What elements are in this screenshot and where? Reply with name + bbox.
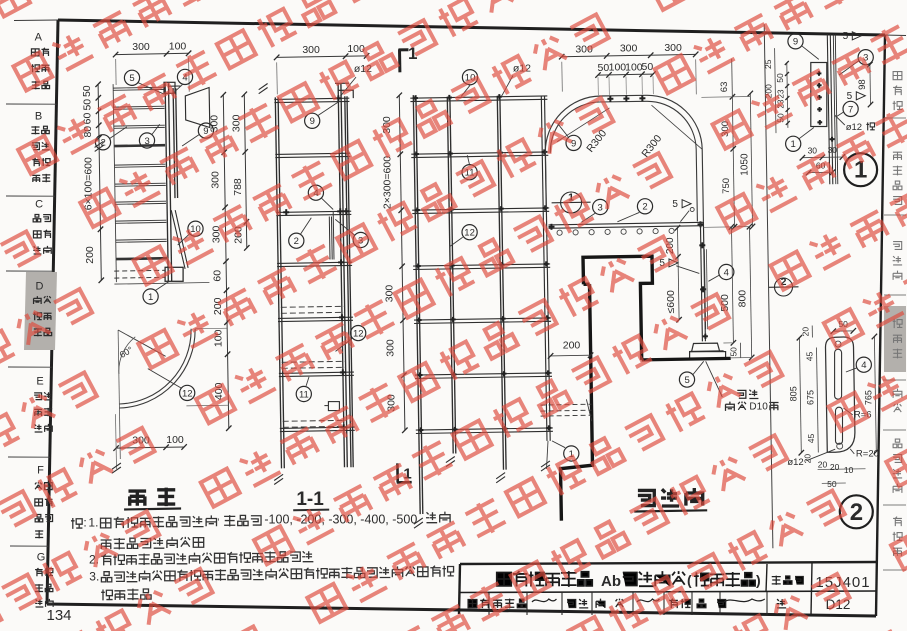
svg-text:1: 1	[791, 139, 796, 150]
svg-text::: :	[83, 516, 86, 530]
svg-text:1-1: 1-1	[296, 489, 324, 510]
svg-text:20: 20	[830, 462, 840, 472]
svg-text:98: 98	[857, 79, 868, 90]
svg-text:5: 5	[684, 375, 689, 386]
svg-text:4: 4	[724, 267, 729, 278]
svg-text:300: 300	[210, 171, 222, 189]
svg-text:45: 45	[806, 434, 816, 444]
svg-text:2: 2	[100, 138, 105, 149]
svg-text:3.: 3.	[89, 570, 99, 584]
svg-text:5: 5	[843, 31, 849, 42]
svg-text:9: 9	[793, 37, 798, 48]
svg-text:30: 30	[808, 146, 818, 156]
svg-text:50: 50	[827, 479, 837, 489]
svg-text:A: A	[35, 31, 43, 43]
svg-text:200: 200	[84, 246, 96, 264]
svg-text:788: 788	[232, 178, 244, 196]
svg-text:50: 50	[642, 61, 654, 73]
svg-text:750: 750	[721, 178, 732, 194]
svg-text:1.: 1.	[88, 516, 98, 530]
svg-text:3: 3	[598, 202, 603, 213]
svg-text:2: 2	[642, 202, 647, 213]
svg-text:63: 63	[719, 82, 730, 93]
svg-text:R=20: R=20	[856, 449, 879, 460]
svg-text:50: 50	[81, 85, 93, 97]
svg-text:4: 4	[861, 360, 866, 371]
svg-text:E: E	[36, 375, 43, 387]
svg-text:B: B	[35, 110, 42, 122]
svg-text:D10: D10	[749, 401, 768, 412]
svg-text:300: 300	[132, 41, 150, 53]
svg-text:Ab: Ab	[601, 573, 621, 590]
svg-text:50: 50	[729, 347, 739, 357]
svg-text:5: 5	[672, 199, 678, 210]
svg-text:20: 20	[818, 459, 828, 469]
svg-text:100: 100	[625, 62, 643, 74]
svg-text:800: 800	[737, 290, 749, 308]
svg-text:-100, -200, -300, -400, -500: -100, -200, -300, -400, -500	[264, 513, 417, 527]
svg-text:50: 50	[598, 62, 610, 74]
svg-text:100: 100	[169, 41, 187, 53]
svg-text:12: 12	[464, 228, 475, 239]
svg-text:134: 134	[46, 607, 71, 624]
svg-text:100: 100	[166, 434, 184, 446]
svg-text:ø12: ø12	[846, 122, 862, 133]
svg-text:ø12: ø12	[787, 457, 803, 468]
svg-text:5: 5	[847, 91, 853, 102]
svg-text:50: 50	[81, 99, 93, 111]
svg-text:10: 10	[844, 465, 854, 475]
svg-text:300: 300	[302, 44, 320, 56]
svg-text:12: 12	[353, 329, 364, 340]
svg-text:D: D	[36, 280, 44, 292]
svg-text:1: 1	[148, 292, 153, 303]
svg-text:100: 100	[609, 62, 627, 74]
svg-text:765: 765	[863, 390, 873, 405]
svg-text:100: 100	[212, 329, 224, 347]
svg-text:1050: 1050	[740, 153, 751, 176]
svg-text:2×300=600: 2×300=600	[382, 156, 394, 209]
svg-text:300: 300	[664, 42, 682, 54]
svg-text:60: 60	[211, 270, 223, 282]
svg-text:45: 45	[805, 352, 815, 362]
svg-text:805: 805	[788, 386, 798, 401]
svg-text:12: 12	[182, 388, 193, 399]
svg-text:G: G	[37, 551, 46, 563]
svg-text:7: 7	[848, 104, 853, 115]
svg-text:11: 11	[299, 389, 309, 400]
svg-text:5: 5	[129, 73, 134, 84]
svg-text:’: ’	[217, 517, 219, 528]
svg-text:30: 30	[828, 145, 838, 155]
svg-text:20: 20	[802, 454, 812, 464]
svg-text:9: 9	[310, 116, 315, 127]
svg-text:50: 50	[775, 73, 785, 83]
svg-text:(: (	[687, 572, 692, 588]
svg-text:2: 2	[850, 499, 863, 526]
svg-text:2: 2	[294, 236, 299, 247]
svg-text:3: 3	[144, 136, 149, 147]
svg-text:): )	[756, 572, 761, 588]
svg-text:25: 25	[763, 59, 773, 69]
svg-text:300: 300	[620, 43, 638, 55]
svg-text:300: 300	[385, 339, 397, 357]
svg-text:675: 675	[805, 390, 815, 405]
svg-text:C: C	[35, 198, 43, 210]
svg-text:200: 200	[563, 340, 581, 352]
svg-text:F: F	[37, 464, 44, 476]
svg-text:≤600: ≤600	[665, 290, 677, 313]
